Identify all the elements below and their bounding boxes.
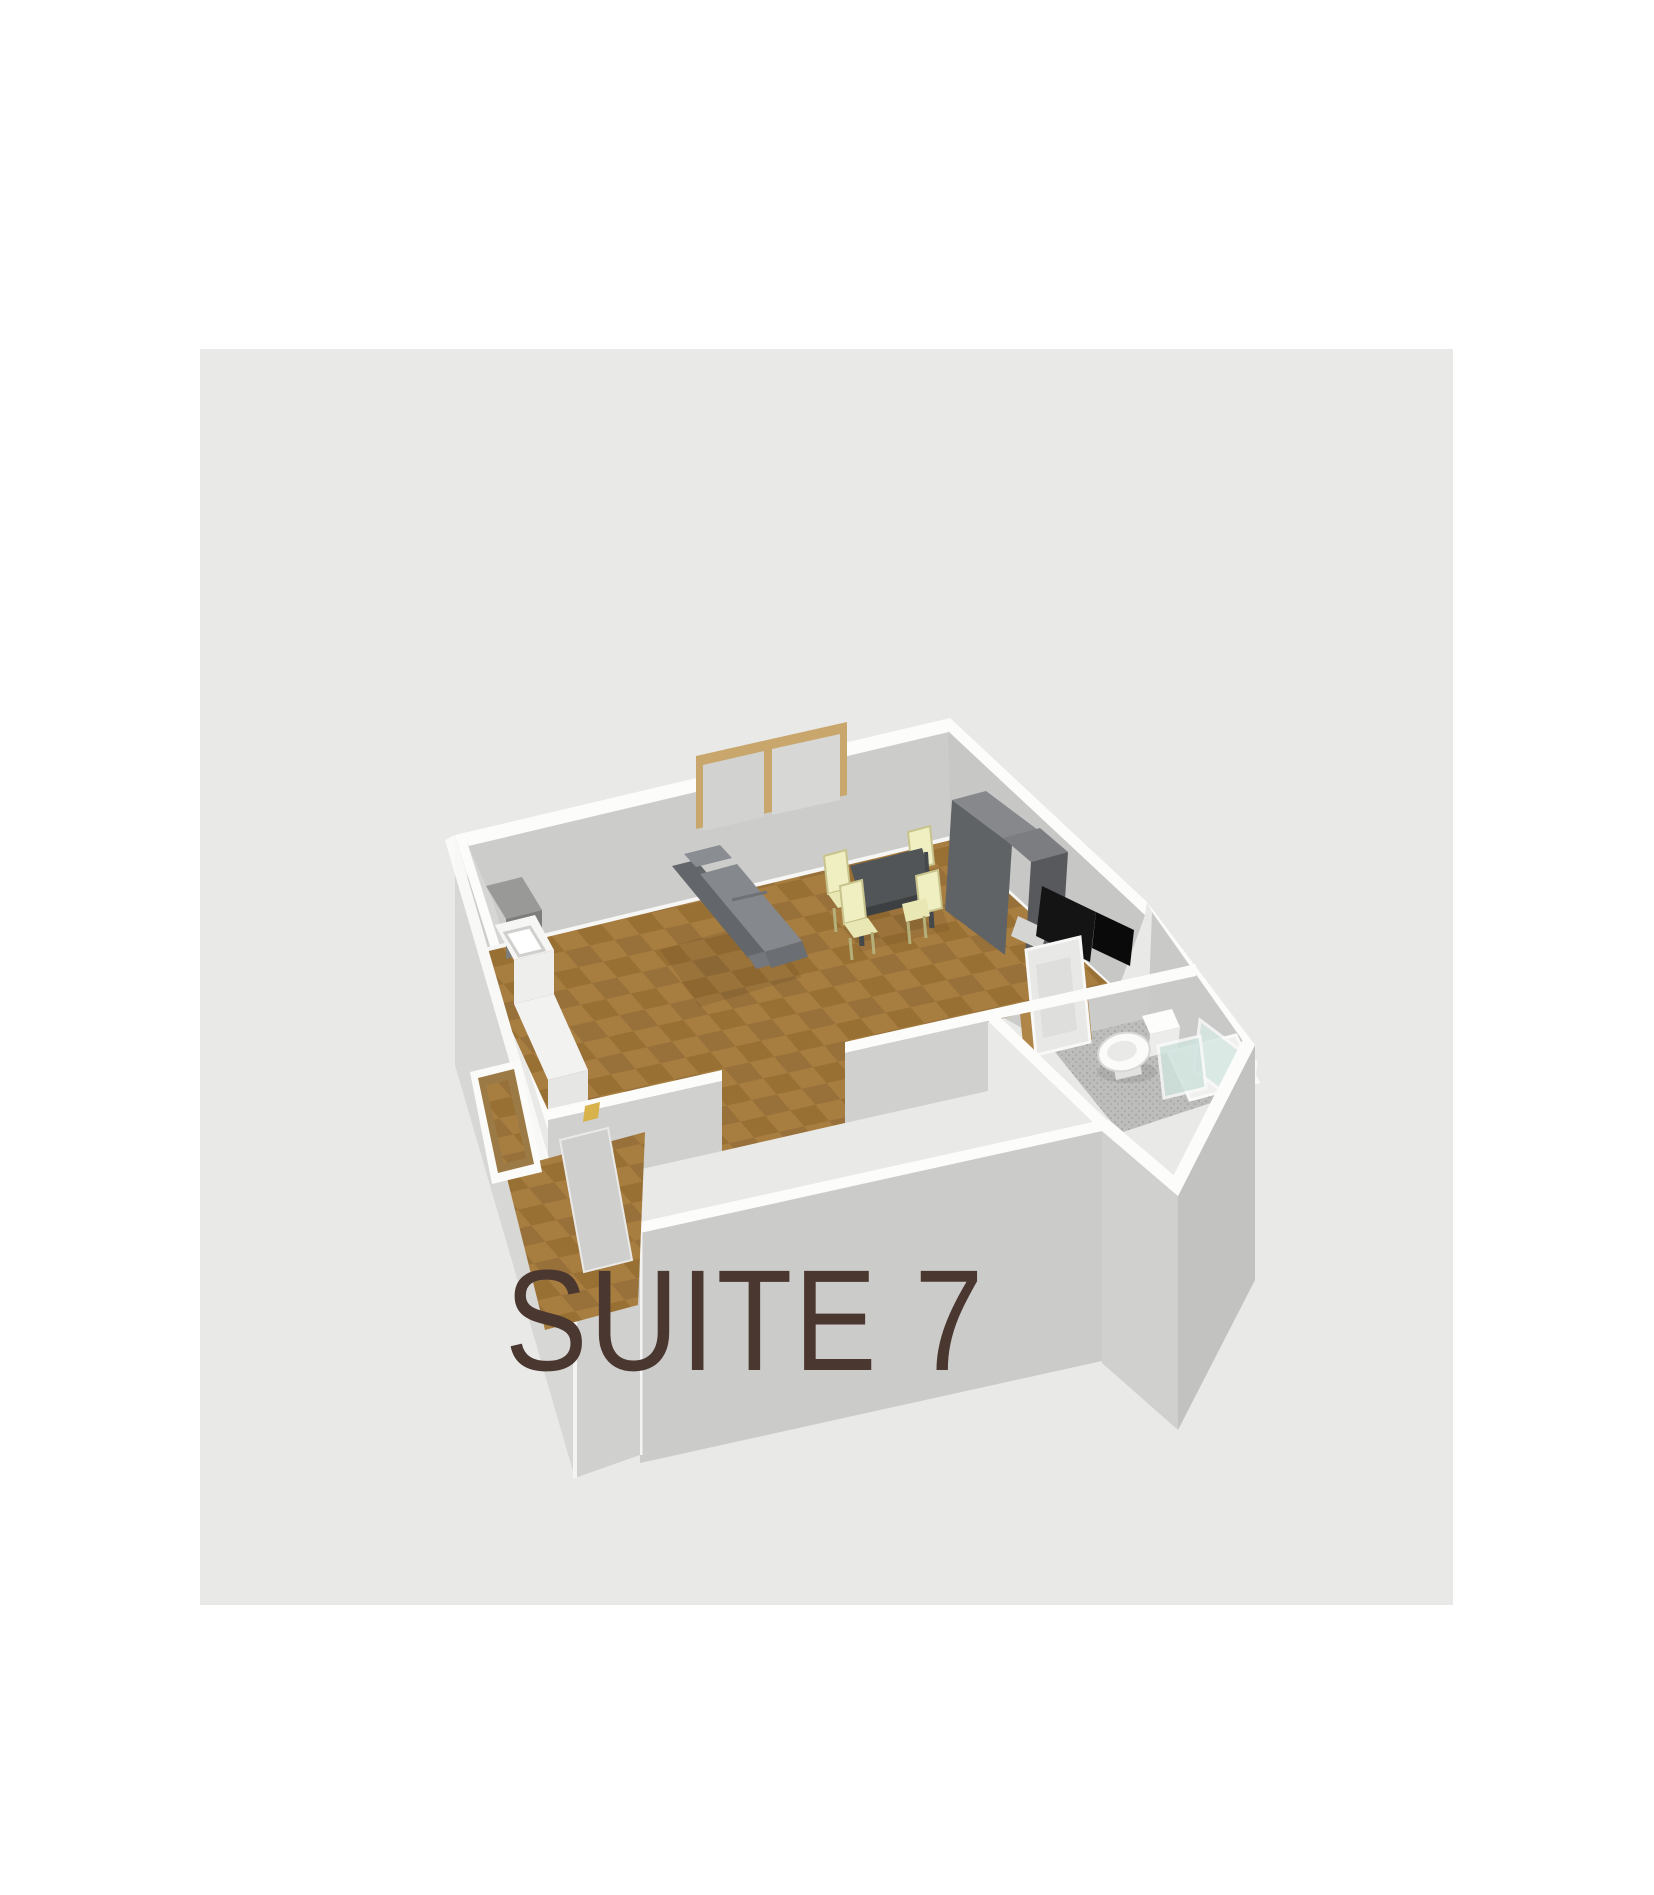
suite-label: SUITE 7	[505, 1238, 985, 1404]
entrance-door-frame	[470, 1060, 542, 1184]
floorplan-page: SUITE 7	[0, 0, 1654, 1895]
floorplan-3d-rendering	[0, 0, 1654, 1895]
